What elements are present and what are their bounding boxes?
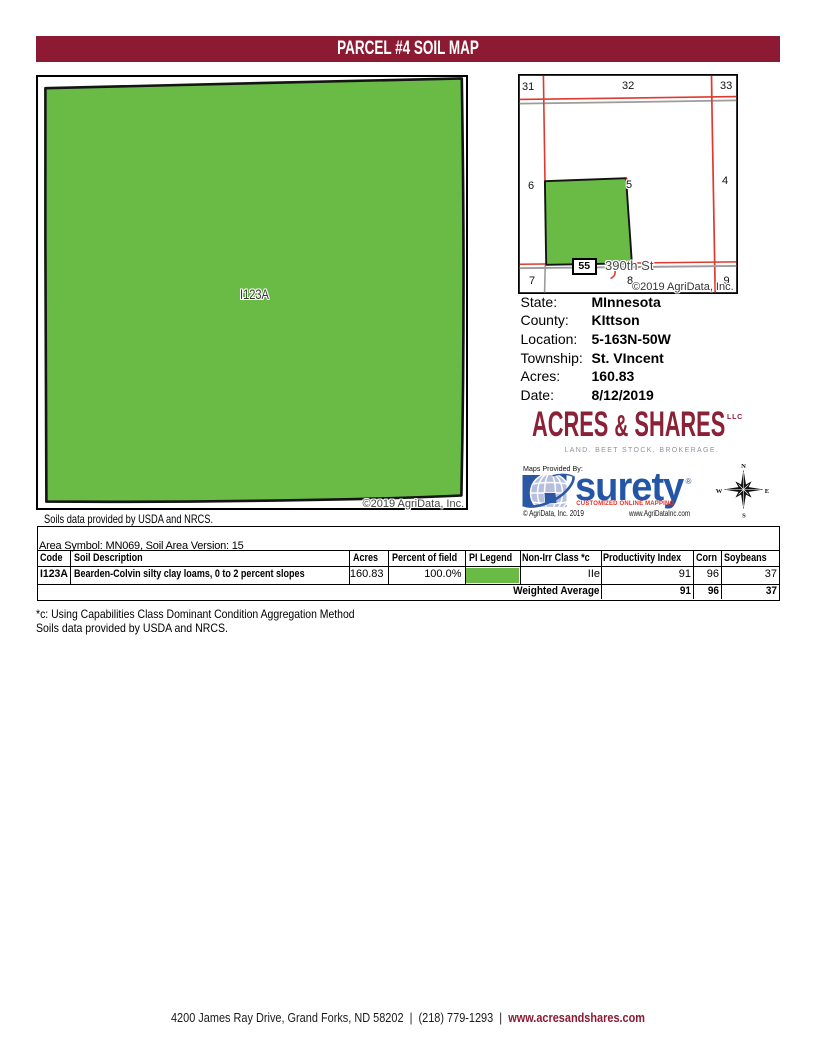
svg-text:N: N xyxy=(741,463,746,470)
svg-text:W: W xyxy=(716,488,723,495)
svg-text:E: E xyxy=(765,488,770,495)
svg-text:S: S xyxy=(742,513,746,520)
